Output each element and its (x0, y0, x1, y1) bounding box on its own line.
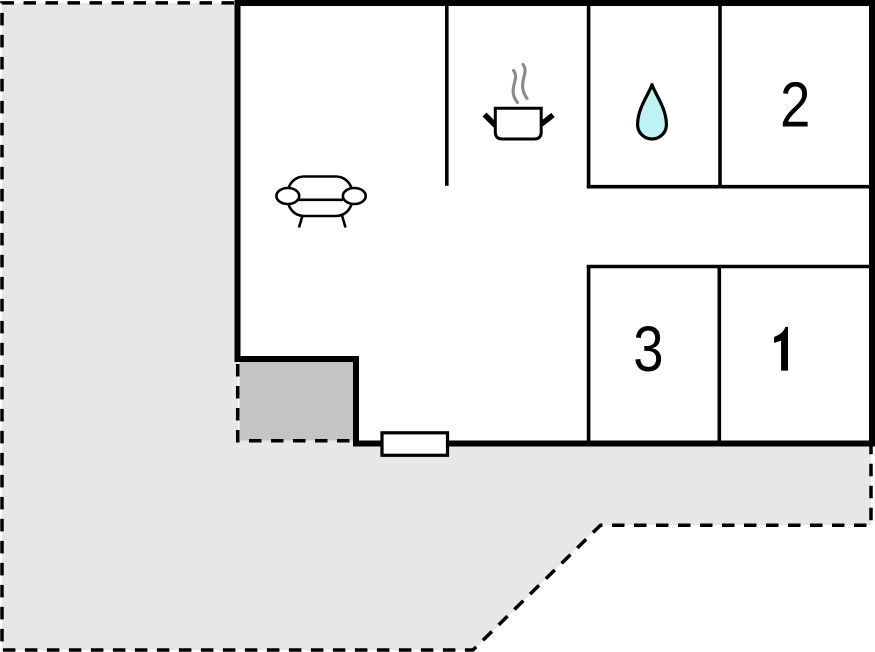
svg-text:2: 2 (780, 68, 810, 140)
svg-text:3: 3 (633, 313, 663, 385)
